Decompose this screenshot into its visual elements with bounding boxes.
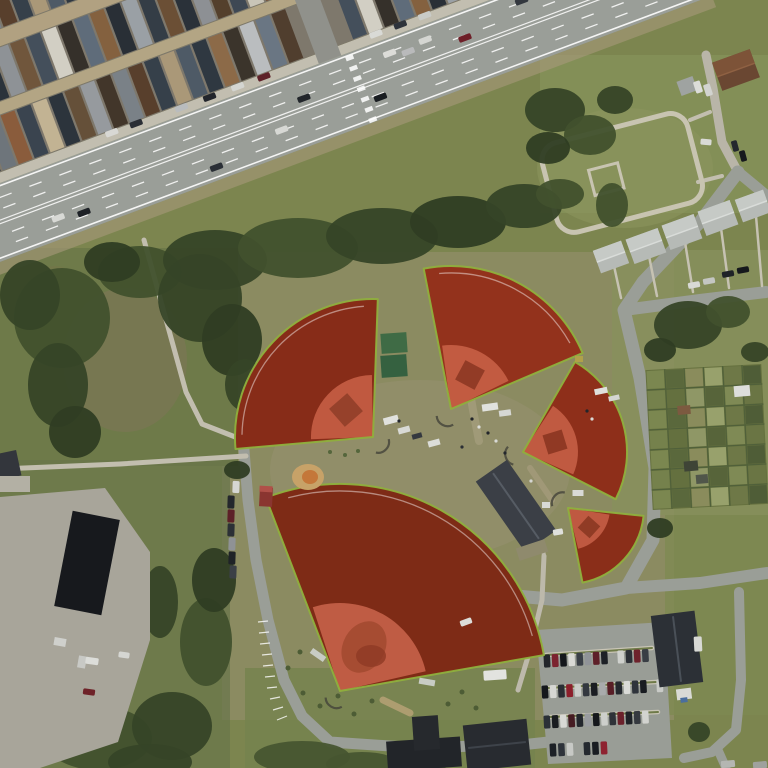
parked-car <box>600 741 607 754</box>
tree-canopy <box>526 132 570 164</box>
garden-plot <box>743 365 761 384</box>
garden-plot <box>648 390 666 409</box>
parked-car <box>601 651 608 664</box>
garden-plot <box>685 368 703 387</box>
dot <box>298 650 303 655</box>
dot <box>301 691 306 696</box>
parked-car <box>552 654 559 667</box>
parked-car <box>574 684 581 697</box>
parked-car <box>576 714 583 727</box>
parked-car <box>552 715 559 728</box>
dot <box>529 479 532 482</box>
garden-plot <box>748 465 766 484</box>
parked-car <box>593 652 600 665</box>
dot <box>336 694 341 699</box>
small-structure <box>380 332 407 354</box>
garden-plot <box>724 366 742 385</box>
vehicle <box>229 565 236 578</box>
parked-car <box>560 715 567 728</box>
vehicle <box>694 636 703 651</box>
garden-plot <box>706 407 724 426</box>
parked-car <box>642 649 649 662</box>
vehicle <box>227 523 234 536</box>
building <box>463 719 531 768</box>
dot <box>477 425 480 428</box>
dot <box>328 450 332 454</box>
dot <box>585 409 588 412</box>
tree-canopy <box>180 598 232 686</box>
tree-canopy <box>647 518 673 538</box>
parked-car <box>566 743 573 756</box>
garden-plot <box>729 466 747 485</box>
garden-shed <box>696 474 709 484</box>
garden-plot <box>653 490 671 509</box>
vehicle <box>227 495 234 508</box>
small-structure <box>542 502 550 508</box>
garden-plot <box>747 445 765 464</box>
dot <box>343 453 347 457</box>
garden-plot <box>726 406 744 425</box>
parked-car <box>543 654 550 667</box>
parked-car <box>634 649 641 662</box>
dot <box>370 699 375 704</box>
parked-car <box>558 743 565 756</box>
garden-plot <box>686 388 704 407</box>
community-garden <box>645 364 768 510</box>
parked-car <box>549 743 556 756</box>
dot <box>486 431 489 434</box>
small-structure <box>0 476 30 492</box>
parked-car <box>593 713 600 726</box>
tree-canopy <box>596 183 628 227</box>
garden-shed <box>677 405 691 415</box>
parked-car <box>592 742 599 755</box>
garden-plot <box>691 488 709 507</box>
garden-plot <box>652 470 670 489</box>
garden-plot <box>650 430 668 449</box>
parked-car <box>601 712 608 725</box>
vehicle <box>228 551 235 564</box>
parked-car <box>634 711 641 724</box>
tree-canopy <box>644 338 676 362</box>
tree-canopy <box>49 406 101 458</box>
dot <box>352 712 357 717</box>
parked-car <box>558 684 565 697</box>
parked-car <box>541 685 548 698</box>
garden-plot <box>749 485 767 504</box>
dot <box>460 445 463 448</box>
parked-car <box>584 713 591 726</box>
garden-plot <box>646 370 664 389</box>
parked-car <box>591 683 598 696</box>
parked-car <box>576 653 583 666</box>
tree-canopy <box>741 342 768 362</box>
garden-plot <box>649 410 667 429</box>
dot <box>494 439 497 442</box>
aerial-photo <box>0 0 768 768</box>
garden-plot <box>705 387 723 406</box>
tree-canopy <box>688 722 710 742</box>
parked-car <box>609 712 616 725</box>
tree-canopy <box>536 179 584 209</box>
tree-canopy <box>0 260 60 330</box>
garden-plot <box>669 429 687 448</box>
vehicle <box>232 481 239 493</box>
garden-plot <box>651 450 669 469</box>
dot <box>503 451 506 454</box>
parked-car <box>625 650 632 663</box>
parked-car <box>583 742 590 755</box>
building <box>412 715 440 751</box>
garden-plot <box>671 469 689 488</box>
small-structure <box>680 697 688 703</box>
parked-car <box>560 653 567 666</box>
dot <box>286 666 291 671</box>
parked-car <box>550 685 557 698</box>
dot <box>446 702 451 707</box>
tree-canopy <box>84 242 140 282</box>
parked-car <box>640 680 647 693</box>
garden-plot <box>746 425 764 444</box>
tree-canopy <box>224 461 250 479</box>
tree-canopy <box>706 296 750 328</box>
vehicle <box>753 761 768 768</box>
satellite-screenshot <box>0 0 768 768</box>
dot <box>474 706 479 711</box>
small-structure <box>573 490 584 496</box>
vehicle <box>227 509 234 522</box>
dot <box>397 419 400 422</box>
parked-car <box>582 683 589 696</box>
garden-plot <box>667 389 685 408</box>
vehicle <box>483 669 507 681</box>
garden-plot <box>710 467 728 486</box>
small-structure <box>575 356 583 362</box>
garden-plot <box>688 428 706 447</box>
dot <box>356 449 360 453</box>
dot <box>460 690 465 695</box>
garden-plot <box>672 489 690 508</box>
tree-canopy <box>597 86 633 114</box>
parked-car <box>617 650 624 663</box>
tree-canopy <box>564 115 616 155</box>
parked-car <box>625 711 632 724</box>
garden-plot <box>708 427 726 446</box>
small-structure <box>380 354 407 378</box>
parked-car <box>632 680 639 693</box>
parking-lot <box>536 622 672 764</box>
garden-plot <box>745 405 763 424</box>
ground-structure <box>302 470 318 484</box>
parked-car <box>617 712 624 725</box>
parked-car <box>623 681 630 694</box>
garden-plot <box>666 369 684 388</box>
vehicle <box>721 760 736 768</box>
garden-shed <box>684 460 699 471</box>
garden-plot <box>711 487 729 506</box>
garden-shed <box>734 385 751 397</box>
small-structure <box>259 486 272 493</box>
garden-plot <box>704 367 722 386</box>
garden-plot <box>709 447 727 466</box>
parked-car <box>543 715 550 728</box>
garden-plot <box>727 426 745 445</box>
parked-car <box>584 652 591 665</box>
dot <box>318 704 323 709</box>
building-roof <box>412 715 440 751</box>
dot <box>590 417 593 420</box>
vehicle <box>228 537 235 550</box>
garden-plot <box>728 446 746 465</box>
parked-car <box>568 653 575 666</box>
garden-plot <box>730 486 748 505</box>
parked-car <box>599 682 606 695</box>
vehicle <box>700 139 711 146</box>
dot <box>470 417 473 420</box>
parked-car <box>642 710 649 723</box>
parked-car <box>615 681 622 694</box>
infield-wear-patch <box>356 645 386 667</box>
parked-car <box>607 682 614 695</box>
parked-car <box>566 684 573 697</box>
parked-car <box>568 714 575 727</box>
